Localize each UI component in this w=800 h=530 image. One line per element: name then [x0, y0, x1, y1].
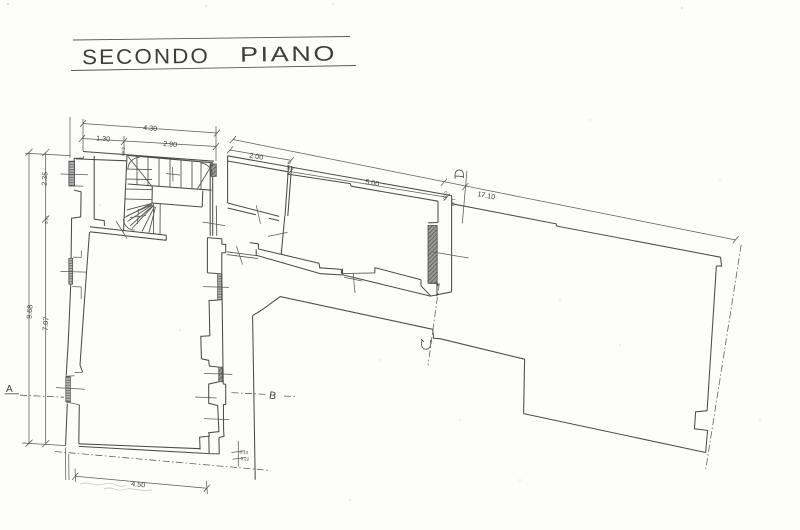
svg-text:0.10: 0.10 [239, 450, 249, 456]
svg-text:9.68: 9.68 [25, 305, 35, 320]
svg-text:0.51: 0.51 [44, 215, 49, 224]
svg-text:B: B [268, 389, 277, 402]
svg-text:2.90: 2.90 [163, 139, 178, 149]
svg-text:1.41: 1.41 [450, 198, 457, 208]
svg-text:17.10: 17.10 [477, 189, 496, 201]
svg-text:0.22: 0.22 [240, 456, 250, 462]
svg-text:4.50: 4.50 [131, 479, 146, 489]
svg-text:4.30: 4.30 [143, 123, 158, 133]
svg-text:PIANO: PIANO [240, 43, 337, 67]
svg-text:2.35: 2.35 [40, 172, 50, 187]
svg-text:7.07: 7.07 [41, 317, 51, 332]
svg-text:SECONDO: SECONDO [82, 45, 210, 69]
svg-text:1.30: 1.30 [96, 134, 111, 144]
